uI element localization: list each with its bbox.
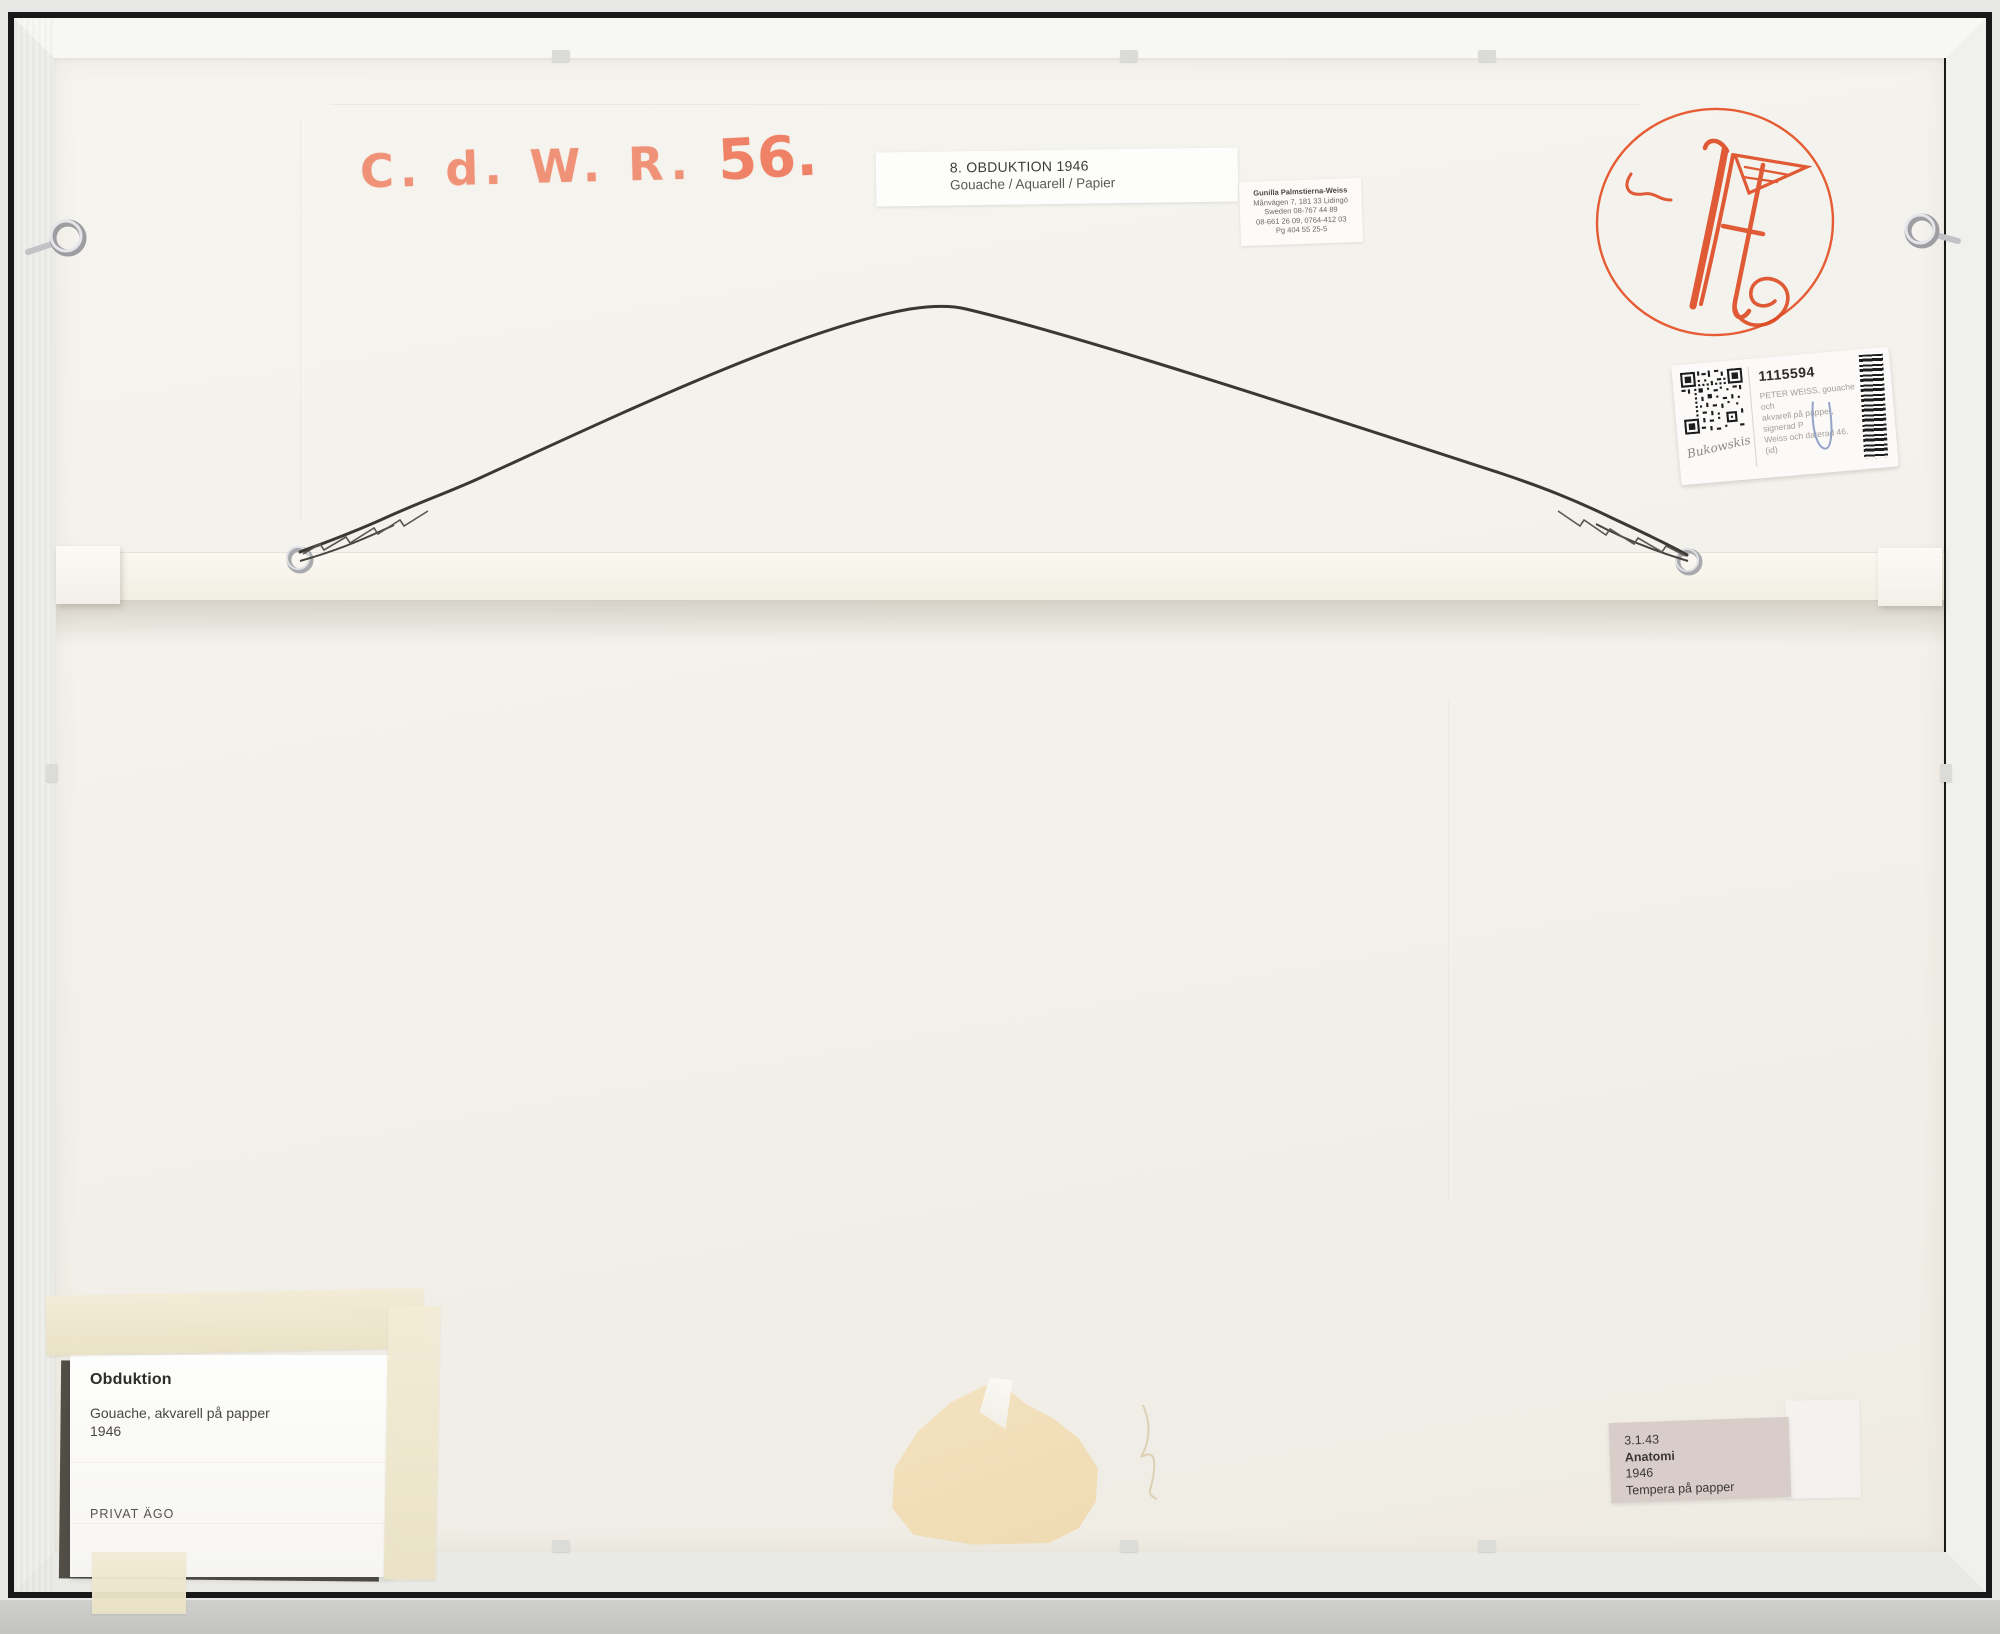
- masking-tape-right: [384, 1306, 441, 1581]
- crossbar-left-block: [56, 546, 120, 604]
- title-label-line1: 8. OBDUKTION 1946: [950, 155, 1238, 175]
- title-label: 8. OBDUKTION 1946 Gouache / Aquarell / P…: [876, 147, 1239, 206]
- exhibition-card-title: Obduktion: [90, 1371, 392, 1389]
- card-crease: [70, 1523, 390, 1524]
- label-divider: [1748, 367, 1758, 467]
- barcode: [1859, 354, 1888, 459]
- glazing-clip: [1478, 1540, 1496, 1552]
- title-label-line2: Gouache / Aquarell / Papier: [950, 173, 1238, 192]
- crossbar-shadow: [56, 600, 1944, 644]
- exhibition-card: Obduktion Gouache, akvarell på papper 19…: [70, 1355, 392, 1577]
- wooden-crossbar: [56, 552, 1944, 601]
- card-crease: [70, 1462, 390, 1463]
- backing-paper-crease: [1448, 700, 1449, 1200]
- glazing-clip: [552, 50, 570, 62]
- backing-paper-crease: [300, 120, 301, 520]
- auction-house-logo: Bukowskis: [1686, 433, 1752, 461]
- exhibition-card-medium: Gouache, akvarell på papper: [90, 1405, 392, 1421]
- address-label: Gunilla Palmstierna-Weiss Månvägen 7, 18…: [1239, 178, 1363, 246]
- handwritten-number: 56.: [716, 123, 818, 193]
- qr-code: [1680, 368, 1747, 435]
- glazing-clip: [1478, 50, 1496, 62]
- auction-label: 1115594 PETER WEISS, gouache och akvarel…: [1671, 347, 1899, 486]
- lot-number: 1115594: [1758, 363, 1816, 384]
- table-surface: [0, 1600, 2000, 1634]
- crossbar-right-block: [1878, 548, 1942, 606]
- masking-tape-bottom: [92, 1552, 186, 1614]
- blue-pen-mark: [1794, 390, 1860, 465]
- backing-paper-seam: [330, 104, 1640, 105]
- glazing-clip: [46, 764, 58, 782]
- photo-back-of-framed-artwork: C. d. W. R. 56. 8. OBDUKTION 1946 Gouach…: [0, 0, 2000, 1634]
- masking-tape-top: [45, 1288, 424, 1356]
- glazing-clip: [1120, 50, 1138, 62]
- inventory-label: 3.1.43 Anatomi 1946 Tempera på papper: [1609, 1417, 1792, 1503]
- glazing-clip: [1940, 764, 1952, 782]
- glazing-clip: [552, 1540, 570, 1552]
- tape-remnant: [1785, 1399, 1861, 1498]
- handwritten-initials: C. d. W. R.: [359, 136, 694, 199]
- exhibition-card-year: 1946: [90, 1423, 392, 1439]
- glazing-clip: [1120, 1540, 1138, 1552]
- exhibition-card-owner: PRIVAT ÄGO: [90, 1507, 174, 1521]
